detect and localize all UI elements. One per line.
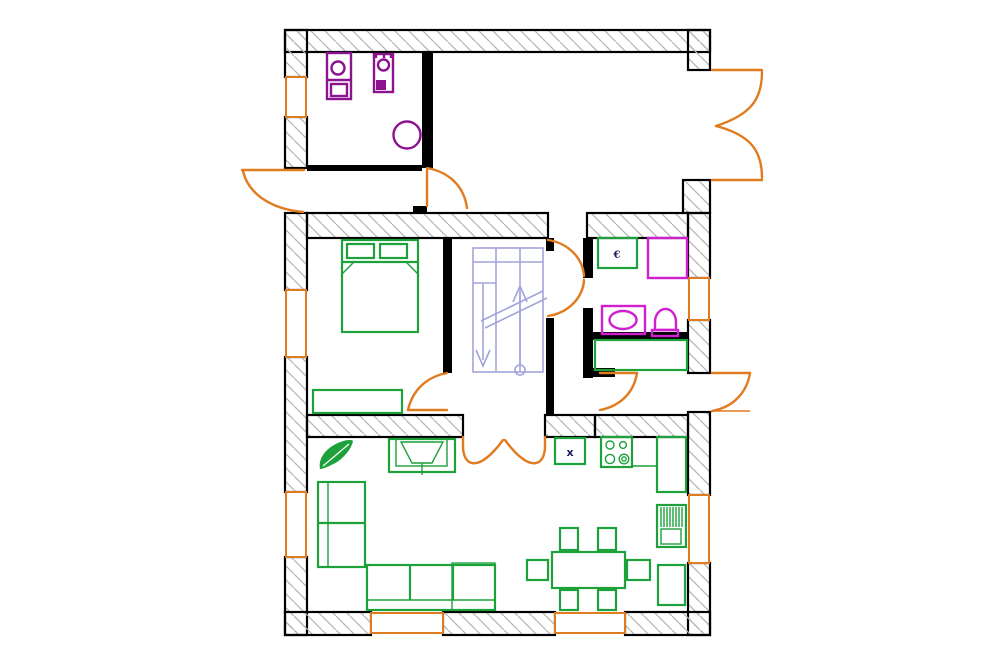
- shower-icon: [648, 238, 687, 278]
- door-arc: [408, 373, 447, 410]
- wall-right-1: [688, 30, 710, 70]
- washbasin-icon: [602, 306, 645, 334]
- floor-plan-drawing: €: [0, 0, 1000, 665]
- wall-living-top-2: [545, 415, 595, 437]
- wall-right-2: [683, 180, 710, 213]
- stair-break-line: [485, 298, 547, 328]
- double-bed-icon: [342, 240, 418, 332]
- window-icon: [689, 278, 709, 320]
- door-arc: [463, 440, 503, 463]
- double-door-swing-icon: [548, 240, 584, 316]
- double-door-swing-icon: [463, 437, 545, 463]
- window-icon: [371, 613, 443, 633]
- wall-left-1: [285, 30, 307, 77]
- wall-corridor-notch: [413, 206, 427, 214]
- door-swing-icon: [712, 373, 750, 411]
- toilet-icon: [652, 309, 678, 336]
- door-arc: [243, 171, 303, 212]
- counter-icon: [632, 437, 686, 492]
- windows: [286, 77, 709, 633]
- door-swing-icon: [242, 170, 304, 212]
- sink-glyph: x: [566, 446, 573, 459]
- double-door-swing-icon: [712, 70, 762, 180]
- plant-icon: [320, 440, 353, 469]
- wall-bottom-1: [285, 612, 371, 635]
- kitchen-sink-icon: x: [555, 438, 585, 464]
- wall-top: [285, 30, 710, 52]
- wall-left-3: [285, 213, 307, 290]
- window-icon: [286, 492, 306, 557]
- radiator-icon: [657, 505, 686, 547]
- door-arc: [716, 72, 762, 126]
- wall-right-5: [688, 412, 710, 495]
- door-arc: [548, 280, 584, 316]
- window-icon: [286, 77, 306, 117]
- wall-bath-left-lower: [583, 308, 593, 378]
- sofa-icon: [318, 482, 495, 610]
- window-icon: [689, 495, 709, 563]
- floor-plan-canvas: €: [0, 0, 1000, 665]
- wall-living-top-1: [307, 415, 463, 437]
- living-room: [318, 439, 495, 610]
- window-icon: [555, 613, 625, 633]
- wall-right-4: [688, 320, 710, 373]
- dryer-icon: [374, 54, 393, 92]
- cabinet-icon: [658, 565, 685, 605]
- wall-bottom-3: [625, 612, 710, 635]
- door-swing-icon: [408, 373, 447, 410]
- wall-bedroom-right: [443, 238, 452, 373]
- tv-unit-icon: [389, 439, 455, 475]
- door-arc: [600, 373, 637, 410]
- wall-hall-right-lower: [546, 318, 554, 415]
- wall-left-2: [285, 117, 307, 168]
- wall-kitchen-top: [595, 415, 688, 437]
- washing-machine-icon: [327, 53, 351, 99]
- door-swing-icon: [427, 168, 467, 208]
- bath-unit-glyph: €: [613, 250, 621, 261]
- dining-set: [527, 528, 650, 610]
- door-swing-icon: [600, 373, 637, 410]
- dining-table-icon: [552, 552, 625, 588]
- wall-middle: [307, 213, 548, 238]
- chair-icon: [598, 528, 616, 550]
- chair-icon: [560, 590, 578, 610]
- chaise-icon: [452, 563, 495, 610]
- chair-icon: [560, 528, 578, 550]
- chair-icon: [527, 560, 548, 580]
- doors: [242, 70, 762, 463]
- kitchen: x: [527, 437, 686, 610]
- wall-bottom-2: [443, 612, 555, 635]
- wall-divider-top-rooms: [422, 52, 433, 168]
- wall-bathroom-top: [587, 213, 688, 238]
- stair-break-line: [481, 291, 543, 321]
- wall-left-4: [285, 357, 307, 492]
- wall-right-3: [688, 213, 710, 278]
- bedroom: [313, 240, 418, 413]
- hall-cabinet-icon: [595, 340, 687, 370]
- door-arc: [505, 440, 545, 463]
- staircase-icon: [473, 248, 547, 375]
- door-arc: [427, 168, 467, 208]
- window-icon: [286, 290, 306, 357]
- wardrobe-icon: [313, 390, 402, 413]
- chair-icon: [598, 590, 616, 610]
- stove-icon: [601, 437, 632, 467]
- utility-room: [327, 53, 421, 149]
- door-arc: [712, 373, 750, 411]
- wall-utility-south: [307, 165, 422, 171]
- door-arc: [716, 126, 762, 178]
- water-heater-icon: [394, 122, 421, 149]
- bathroom: €: [595, 238, 687, 370]
- chair-icon: [627, 560, 650, 580]
